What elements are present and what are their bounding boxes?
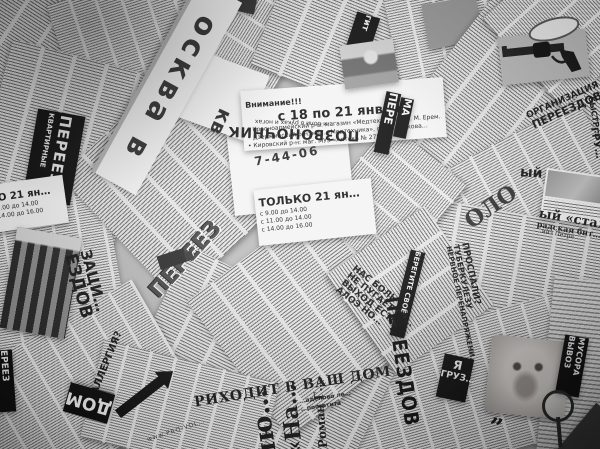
newspaper-collage-photo: осква в кв КВАРТИРНЫЕ ПЕРЕЕЗ Внимание!!!… [0, 0, 600, 449]
git-label: гит [359, 14, 374, 33]
spine-ad-headline: ПОЗВОНОЧНИК …и боли в руках и ногах [228, 116, 360, 145]
typewriter-photo [339, 38, 399, 89]
ma-vertical-label: МА [399, 97, 413, 117]
ereez-label: ЕРЕЕЗ [0, 350, 10, 382]
yy-fragment: ый [520, 165, 543, 181]
